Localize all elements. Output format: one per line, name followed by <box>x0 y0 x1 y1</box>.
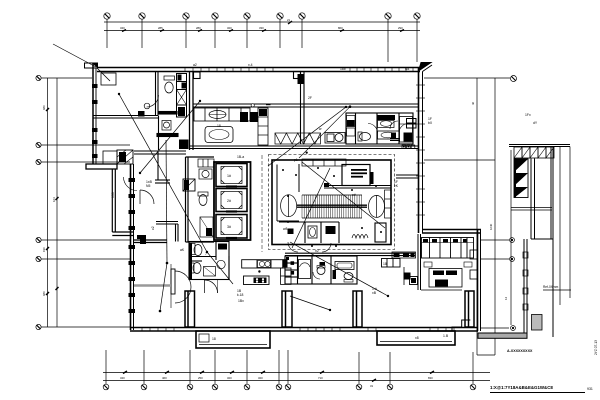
svg-text:680: 680 <box>42 105 46 110</box>
svg-text:1Bx: 1Bx <box>238 299 244 303</box>
svg-text:320: 320 <box>258 376 263 380</box>
svg-text:250: 250 <box>198 376 203 380</box>
svg-text:1B-a: 1B-a <box>237 155 244 159</box>
svg-text:18: 18 <box>217 124 221 128</box>
svg-text:285: 285 <box>158 26 163 30</box>
svg-text:190: 190 <box>42 247 46 252</box>
svg-text:14: 14 <box>504 296 508 300</box>
svg-text:2YZ 07-13: 2YZ 07-13 <box>594 340 598 355</box>
svg-text:330: 330 <box>259 26 264 30</box>
svg-text:Ref-0Xmm: Ref-0Xmm <box>543 285 559 289</box>
svg-text:18: 18 <box>212 337 216 341</box>
svg-text:bX: bX <box>428 121 433 125</box>
svg-text:290: 290 <box>398 26 403 30</box>
svg-text:1#: 1# <box>227 174 231 178</box>
svg-text:21: 21 <box>287 18 291 22</box>
svg-text:w8: w8 <box>283 227 287 231</box>
svg-text:2F: 2F <box>308 96 312 100</box>
svg-text:1Fx: 1Fx <box>525 113 531 117</box>
svg-text:a2: a2 <box>193 63 197 67</box>
svg-text:18b: 18b <box>340 67 346 71</box>
svg-text:280: 280 <box>196 26 201 30</box>
svg-text:31: 31 <box>370 384 374 388</box>
svg-text:340: 340 <box>120 26 125 30</box>
svg-text:860: 860 <box>338 26 343 30</box>
svg-text:710: 710 <box>318 376 323 380</box>
svg-text:460: 460 <box>162 376 167 380</box>
svg-text:1.B: 1.B <box>443 334 449 338</box>
svg-text:2#: 2# <box>227 199 231 203</box>
svg-text:aK: aK <box>180 248 185 252</box>
svg-text:A-XXXXXXXXX: A-XXXXXXXXX <box>507 349 533 353</box>
svg-text:n2: n2 <box>315 249 319 253</box>
svg-text:155: 155 <box>111 192 115 198</box>
svg-text:p1: p1 <box>294 158 298 162</box>
svg-text:340: 340 <box>120 376 125 380</box>
svg-text:x8: x8 <box>415 336 419 340</box>
svg-text:3#: 3# <box>227 225 231 229</box>
svg-text:1640: 1640 <box>489 223 493 230</box>
svg-text:k.18: k.18 <box>237 293 244 297</box>
svg-text:x2: x2 <box>151 226 155 230</box>
svg-text:680: 680 <box>42 291 46 296</box>
svg-text:7: 7 <box>205 252 207 256</box>
svg-text:x.4: x.4 <box>248 63 253 67</box>
svg-text:N5: N5 <box>146 184 150 188</box>
svg-text:164: 164 <box>52 197 56 202</box>
svg-text:830: 830 <box>428 376 433 380</box>
svg-text:dY: dY <box>533 121 538 125</box>
svg-text:N4: N4 <box>405 67 409 71</box>
svg-text:1:X@1:7Y18A&B&E&G1W&C8: 1:X@1:7Y18A&B&E&G1W&C8 <box>490 385 553 390</box>
svg-text:320: 320 <box>227 26 232 30</box>
svg-text:931: 931 <box>587 387 593 391</box>
svg-text:320: 320 <box>227 376 232 380</box>
svg-text:46: 46 <box>471 101 475 105</box>
svg-text:e#: e# <box>352 193 356 197</box>
svg-text:18: 18 <box>383 262 387 266</box>
